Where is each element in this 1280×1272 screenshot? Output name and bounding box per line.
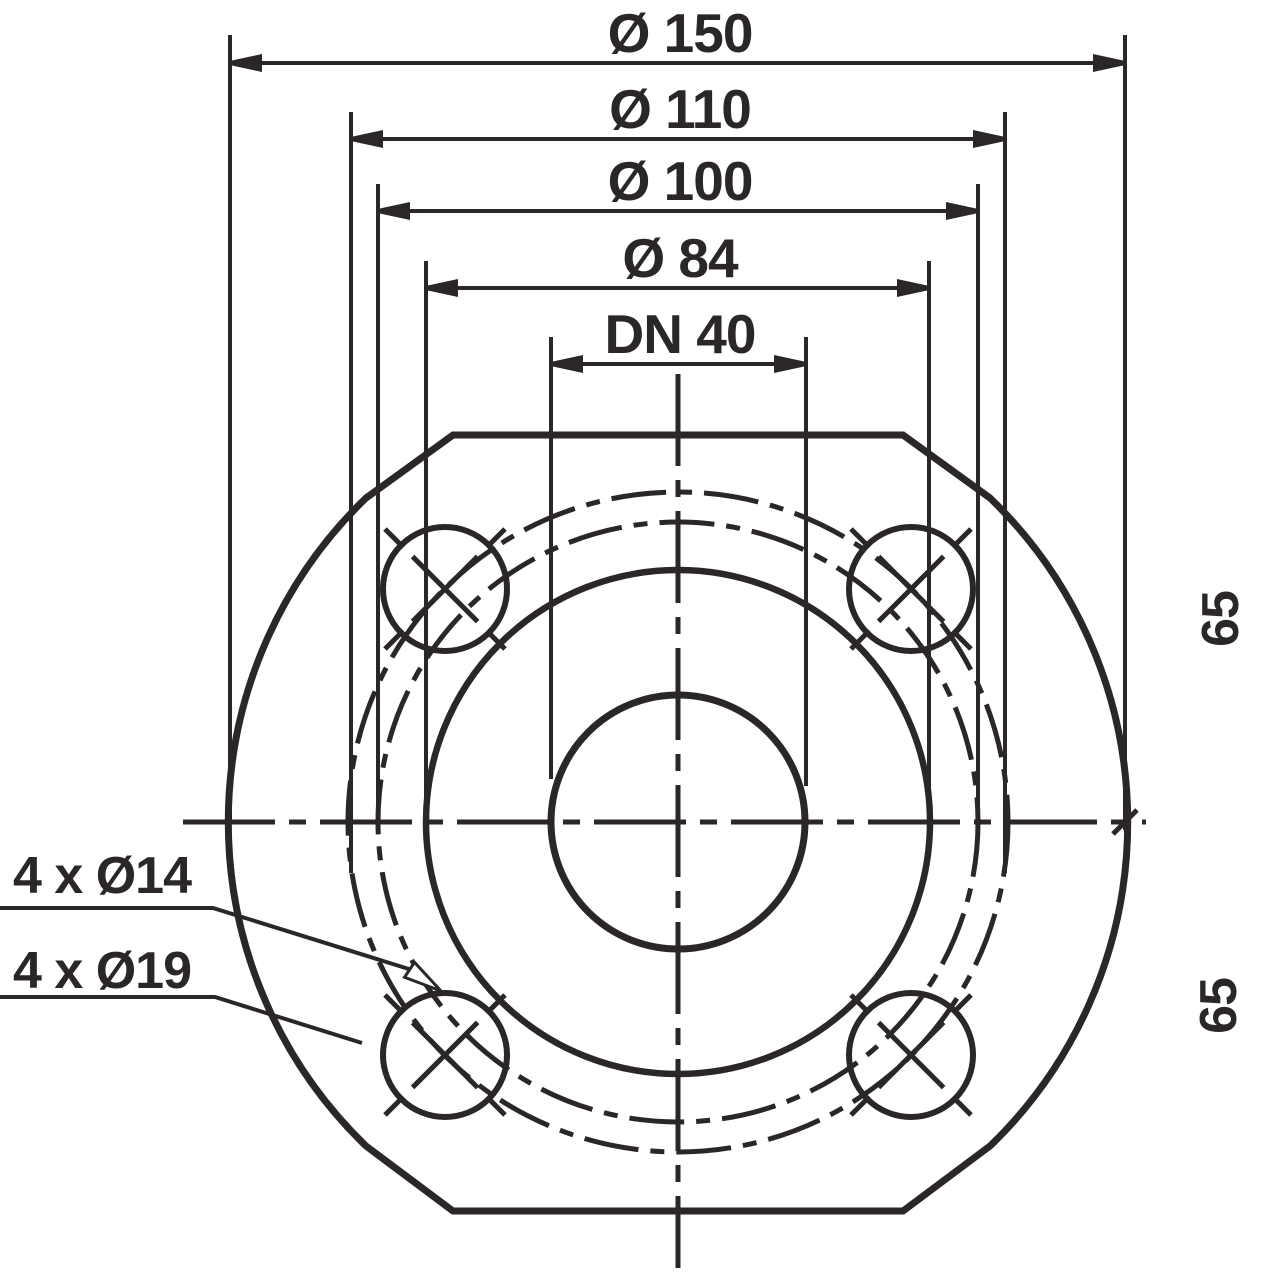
arrowhead-110-left [351, 133, 381, 146]
dim-label-100: Ø 100 [608, 150, 753, 212]
dim-label-150: Ø 150 [608, 2, 753, 64]
hole-note-d19: 4 x Ø19 [13, 942, 191, 1000]
arrowhead-150-left [230, 57, 260, 70]
dim-label-dn40: DN 40 [605, 303, 756, 365]
dim-label-65-top: 65 [1192, 591, 1250, 647]
arrowhead-84-right [899, 282, 929, 295]
arrowhead-110-right [975, 133, 1005, 146]
dim-label-84: Ø 84 [622, 227, 739, 289]
arrowhead-100-right [948, 205, 978, 218]
leader-line-d19 [0, 997, 362, 1043]
arrowhead-84-left [426, 282, 456, 295]
arrowhead-100-left [378, 205, 408, 218]
arrowhead-150-right [1095, 57, 1125, 70]
arrowhead-dn40-left [551, 358, 581, 371]
flange-drawing-svg: Ø 150 Ø 110 Ø 100 Ø 84 DN 40 65 65 4 x Ø… [0, 0, 1280, 1272]
dim-label-65-bottom: 65 [1190, 978, 1248, 1034]
dimension-labels: Ø 150 Ø 110 Ø 100 Ø 84 DN 40 65 65 4 x Ø… [13, 2, 1250, 1034]
leader-open-arrowhead-d14 [405, 962, 442, 991]
hole-note-d14: 4 x Ø14 [13, 847, 192, 905]
dim-label-110: Ø 110 [609, 78, 751, 140]
arrowhead-dn40-right [776, 358, 806, 371]
flange-dimension-drawing: Ø 150 Ø 110 Ø 100 Ø 84 DN 40 65 65 4 x Ø… [0, 0, 1280, 1272]
